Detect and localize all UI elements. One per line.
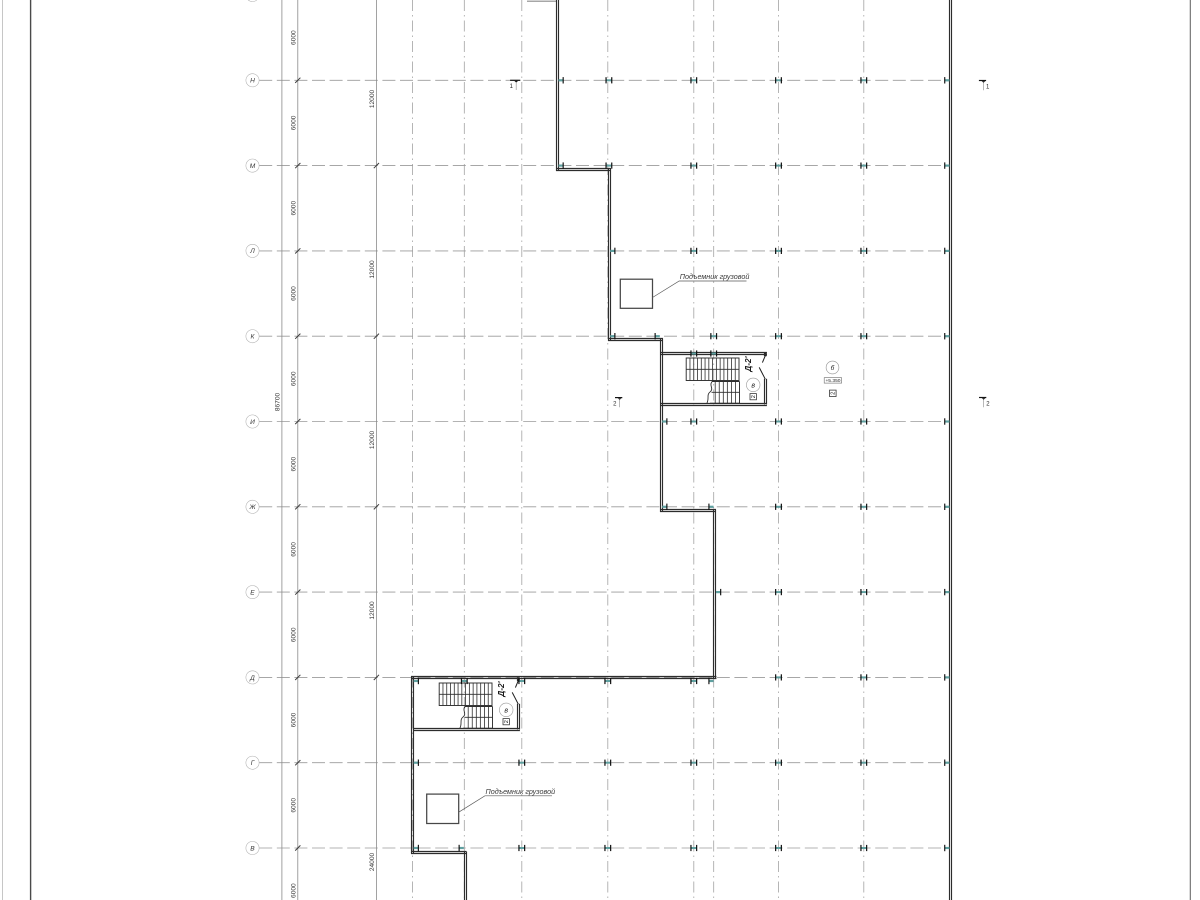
- svg-text:б: б: [831, 364, 835, 372]
- svg-text:Д: Д: [249, 675, 255, 682]
- svg-text:86700: 86700: [274, 393, 281, 412]
- svg-text:Н: Н: [250, 78, 255, 85]
- svg-text:2: 2: [831, 392, 837, 395]
- svg-text:6000: 6000: [290, 371, 297, 386]
- svg-text:Л: Л: [249, 248, 255, 255]
- svg-text:6000: 6000: [290, 201, 297, 216]
- svg-text:Г: Г: [251, 760, 255, 767]
- svg-text:12000: 12000: [369, 260, 376, 279]
- svg-text:6000: 6000: [290, 798, 297, 813]
- svg-text:12000: 12000: [369, 601, 376, 620]
- svg-text:6000: 6000: [290, 30, 297, 45]
- svg-text:6000: 6000: [290, 712, 297, 727]
- svg-text:Ж: Ж: [248, 504, 256, 511]
- svg-text:6000: 6000: [290, 883, 297, 898]
- svg-text:24000: 24000: [369, 853, 376, 872]
- svg-text:Подъемник грузовой: Подъемник грузовой: [680, 272, 750, 281]
- svg-text:12000: 12000: [369, 431, 376, 450]
- svg-text:12000: 12000: [369, 90, 376, 109]
- svg-text:Е: Е: [250, 590, 255, 597]
- svg-text:6000: 6000: [290, 286, 297, 301]
- svg-text:В: В: [250, 845, 255, 852]
- svg-text:+5.350: +5.350: [825, 378, 840, 384]
- svg-text:6000: 6000: [290, 456, 297, 471]
- svg-text:М: М: [250, 163, 256, 170]
- svg-text:6000: 6000: [290, 542, 297, 557]
- svg-text:И: И: [250, 419, 255, 426]
- svg-text:6000: 6000: [290, 627, 297, 642]
- svg-text:6000: 6000: [290, 115, 297, 130]
- svg-text:Подъемник грузовой: Подъемник грузовой: [486, 787, 556, 796]
